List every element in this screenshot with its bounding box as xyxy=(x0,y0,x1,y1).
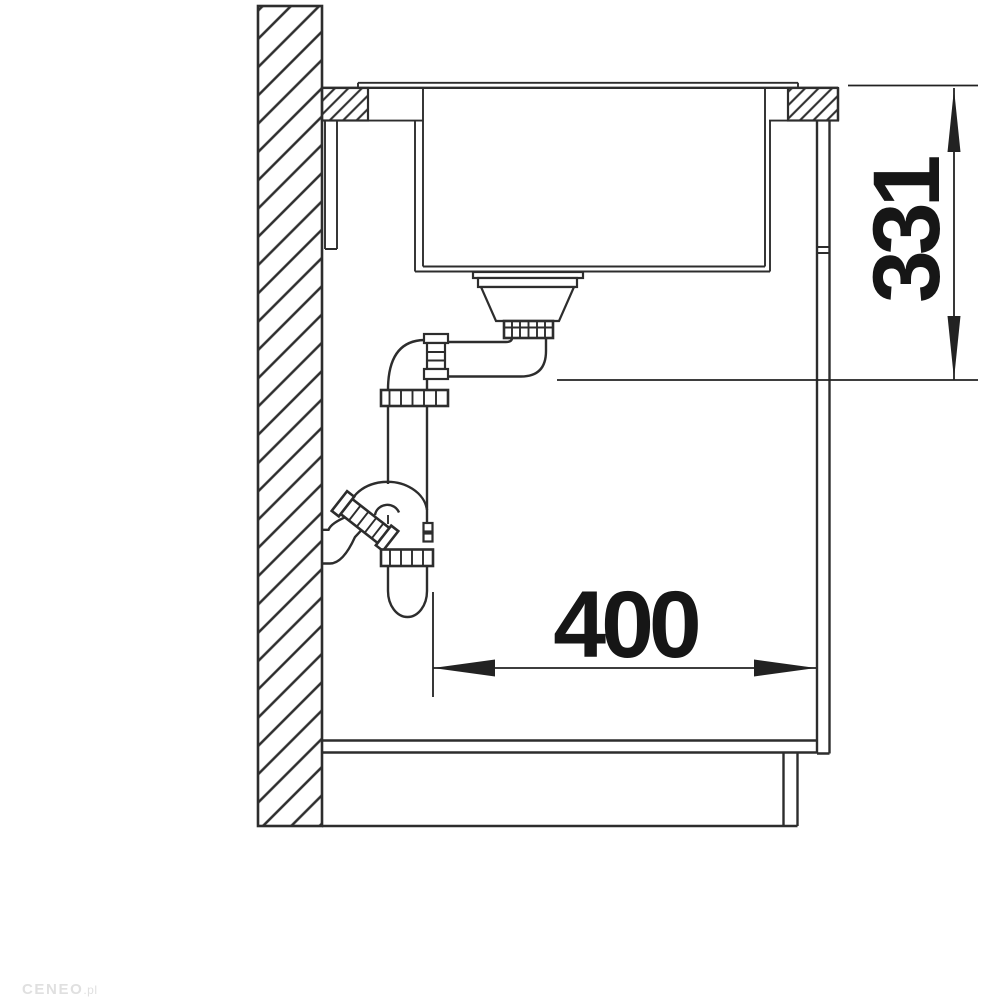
trap-bottom-cup xyxy=(388,566,427,617)
wall-section xyxy=(258,6,322,826)
strainer-cone xyxy=(481,287,574,321)
cabinet-bottom-shelf xyxy=(322,741,817,753)
pipe-top-edge xyxy=(448,338,512,342)
cabinet-front-panel xyxy=(817,121,830,754)
coupling-nut-upper xyxy=(381,390,448,406)
technical-drawing-canvas: 331 400 CENEO.pl xyxy=(0,0,1000,1000)
strainer-body xyxy=(478,278,577,287)
arrowhead-down xyxy=(948,316,961,379)
cabinet-carcass xyxy=(322,121,830,826)
cabinet-front-joint xyxy=(817,247,830,253)
arrowhead-up xyxy=(948,89,961,152)
dimension-depth: 400 xyxy=(433,572,816,697)
cabinet-plinth xyxy=(784,753,798,827)
countertop-right-section xyxy=(788,88,838,121)
drain-piping xyxy=(381,334,546,510)
siphon-trap xyxy=(322,482,433,617)
watermark: CENEO.pl xyxy=(22,981,98,998)
pipe-clip-tab xyxy=(424,534,433,542)
arrowhead-right xyxy=(754,660,816,677)
elbow-outer-curve xyxy=(388,340,424,390)
watermark-suffix: .pl xyxy=(83,983,97,997)
dimension-depth-value: 400 xyxy=(553,572,698,678)
drain-strainer xyxy=(473,272,583,338)
watermark-brand: CENEO xyxy=(22,981,83,998)
dimension-height: 331 xyxy=(557,86,978,381)
adapter-flare xyxy=(424,369,448,379)
strainer-nut-ribs xyxy=(504,322,553,339)
coupling-nut-lower xyxy=(381,550,433,567)
dimension-height-value: 331 xyxy=(854,156,960,303)
arrowhead-left xyxy=(433,660,495,677)
adapter-body xyxy=(427,343,445,369)
trap-arch-inner xyxy=(375,505,399,515)
adapter-cap xyxy=(424,334,448,343)
wall-ledger-strip xyxy=(325,121,337,249)
pipe-bottom-edge xyxy=(448,338,546,377)
bowl-inner-wall xyxy=(423,88,765,267)
countertop-left-section xyxy=(322,88,368,121)
sink-section-diagram: 331 400 CENEO.pl xyxy=(0,0,1000,1000)
pipe-clip-tab xyxy=(424,523,433,532)
countertop xyxy=(322,88,838,121)
drop-pipe xyxy=(388,406,427,510)
sink-bowl xyxy=(358,83,798,272)
bowl-outer-wall xyxy=(415,121,770,272)
